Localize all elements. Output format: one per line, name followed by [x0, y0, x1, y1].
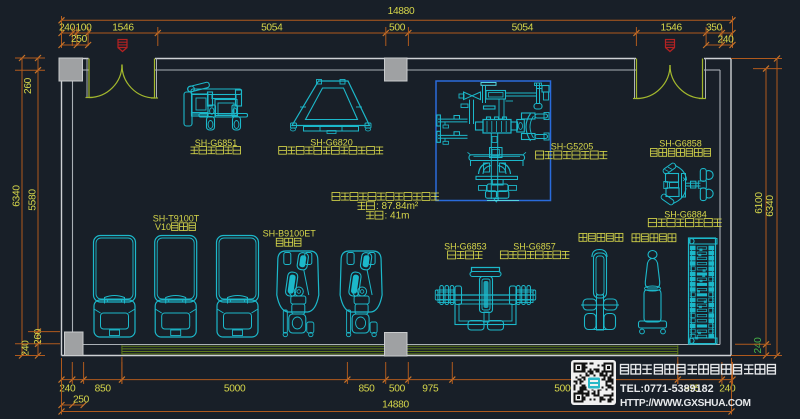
- svg-text:350: 350: [706, 23, 723, 34]
- svg-text:850: 850: [95, 384, 112, 395]
- svg-text:6340: 6340: [12, 185, 23, 207]
- svg-text:250: 250: [71, 34, 88, 45]
- svg-text:850: 850: [358, 384, 375, 395]
- svg-text:260: 260: [23, 77, 34, 94]
- svg-text:100: 100: [75, 23, 92, 34]
- svg-text:14880: 14880: [388, 6, 415, 17]
- svg-text:SH-G5205: SH-G5205: [551, 141, 594, 151]
- svg-text:: 41m: : 41m: [385, 211, 410, 222]
- svg-text:HTTP://WWW.GXSHUA.COM: HTTP://WWW.GXSHUA.COM: [620, 398, 751, 409]
- svg-text:TEL:0771-5389182: TEL:0771-5389182: [620, 383, 714, 395]
- svg-text:5054: 5054: [261, 23, 283, 34]
- svg-text:SH-G6853: SH-G6853: [444, 242, 487, 252]
- svg-text:975: 975: [422, 384, 439, 395]
- svg-text:240: 240: [719, 384, 736, 395]
- svg-text:500: 500: [389, 384, 406, 395]
- svg-text:SH-G6857: SH-G6857: [513, 242, 556, 252]
- svg-text:1546: 1546: [660, 23, 682, 34]
- svg-text:V10: V10: [155, 222, 171, 232]
- svg-text:SH-G6820: SH-G6820: [310, 138, 353, 148]
- svg-text:SH-G6858: SH-G6858: [659, 139, 702, 149]
- svg-text:5000: 5000: [224, 384, 246, 395]
- svg-text:240: 240: [59, 23, 76, 34]
- svg-text:240: 240: [717, 35, 734, 46]
- svg-text:1546: 1546: [112, 23, 134, 34]
- svg-text:500: 500: [389, 23, 406, 34]
- svg-text:5054: 5054: [512, 23, 534, 34]
- svg-text:240: 240: [753, 337, 764, 354]
- svg-text:240: 240: [21, 340, 32, 357]
- svg-text:5580: 5580: [28, 189, 39, 211]
- svg-text:SH-B9100ET: SH-B9100ET: [263, 229, 317, 239]
- svg-text:6100: 6100: [754, 192, 765, 214]
- svg-text:260: 260: [33, 328, 44, 345]
- svg-text:250: 250: [73, 395, 90, 406]
- svg-text:14880: 14880: [382, 400, 409, 411]
- svg-text:6340: 6340: [765, 195, 776, 217]
